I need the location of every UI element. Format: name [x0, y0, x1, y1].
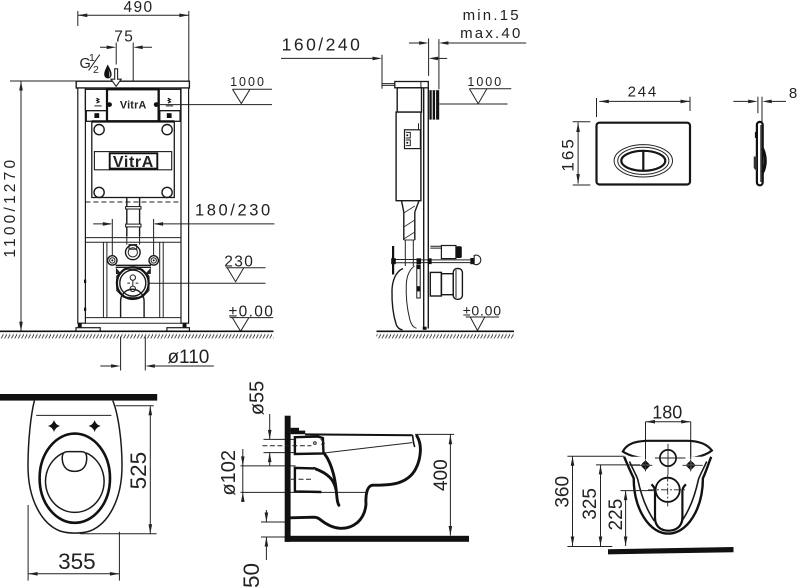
svg-text:244: 244: [628, 84, 658, 101]
svg-text:180: 180: [652, 403, 682, 423]
svg-text:165: 165: [559, 137, 578, 171]
svg-text:VitrA: VitrA: [113, 154, 154, 171]
svg-text:180/230: 180/230: [195, 202, 273, 220]
svg-text:ø55: ø55: [247, 381, 269, 415]
svg-text:2: 2: [93, 64, 99, 76]
svg-text:490: 490: [123, 0, 153, 16]
svg-text:1000: 1000: [230, 75, 266, 89]
svg-text:225: 225: [606, 499, 627, 531]
svg-text:8: 8: [789, 85, 798, 102]
svg-text:325: 325: [580, 488, 601, 520]
svg-text:50: 50: [239, 563, 264, 588]
svg-text:ø102: ø102: [218, 450, 240, 496]
svg-text:75: 75: [114, 29, 134, 46]
svg-text:1100/1270: 1100/1270: [2, 157, 19, 258]
svg-text:160/240: 160/240: [282, 35, 363, 55]
svg-text:VitrA: VitrA: [120, 99, 147, 111]
svg-text:±0.00: ±0.00: [463, 303, 502, 319]
svg-text:min.15: min.15: [463, 7, 521, 24]
svg-text:400: 400: [431, 459, 452, 491]
svg-text:1000: 1000: [467, 75, 503, 89]
svg-text:360: 360: [553, 476, 574, 508]
svg-text:525: 525: [126, 452, 151, 490]
svg-text:ø110: ø110: [167, 347, 209, 368]
svg-text:max.40: max.40: [460, 25, 522, 42]
svg-text:355: 355: [58, 549, 96, 574]
